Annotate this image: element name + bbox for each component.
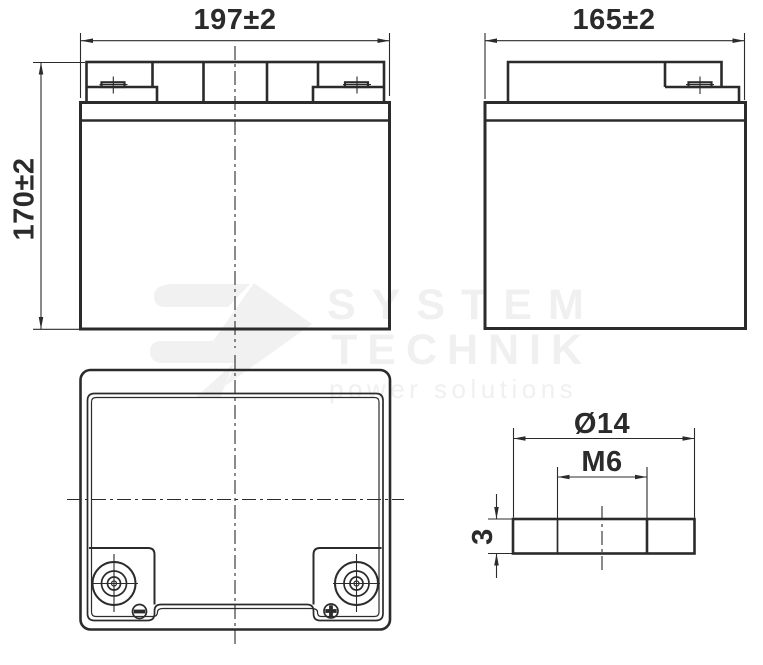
terminal-disc [513, 519, 695, 554]
terminal-thread-dimension-label: M6 [581, 446, 622, 478]
terminal-detail-view [513, 506, 695, 573]
top-negative-terminal [91, 554, 138, 612]
front-height-dimension-label: 170±2 [9, 158, 41, 241]
terminal-height-dimension: 3 [467, 494, 513, 578]
top-positive-terminal [333, 554, 380, 612]
dimension-annotations: 197±2 170±2 165±2 [9, 4, 745, 578]
side-view [485, 62, 746, 329]
terminal-height-dimension-label: 3 [467, 528, 499, 545]
terminal-diameter-dimension-label: Ø14 [574, 408, 630, 440]
side-case [485, 103, 746, 329]
side-terminal-centermark [686, 77, 714, 95]
drawing-canvas: 197±2 170±2 165±2 [0, 0, 763, 665]
top-positive-terminal-well [314, 548, 382, 605]
top-view [67, 355, 404, 648]
front-left-terminal-pedestal [87, 87, 158, 103]
side-terminal-pedestal [665, 87, 739, 103]
positive-polarity-icon [324, 604, 338, 618]
front-right-terminal-centermark [343, 77, 371, 94]
front-width-dimension-label: 197±2 [194, 4, 277, 36]
top-negative-terminal-well [89, 548, 155, 605]
front-right-terminal-pedestal [313, 87, 384, 103]
battery-technical-drawing: SYSTEM TECHNIK power solutions [0, 0, 763, 665]
front-view [81, 46, 390, 348]
side-depth-dimension: 165±2 [485, 4, 745, 100]
front-left-terminal-centermark [100, 77, 128, 94]
side-depth-dimension-label: 165±2 [573, 4, 656, 36]
